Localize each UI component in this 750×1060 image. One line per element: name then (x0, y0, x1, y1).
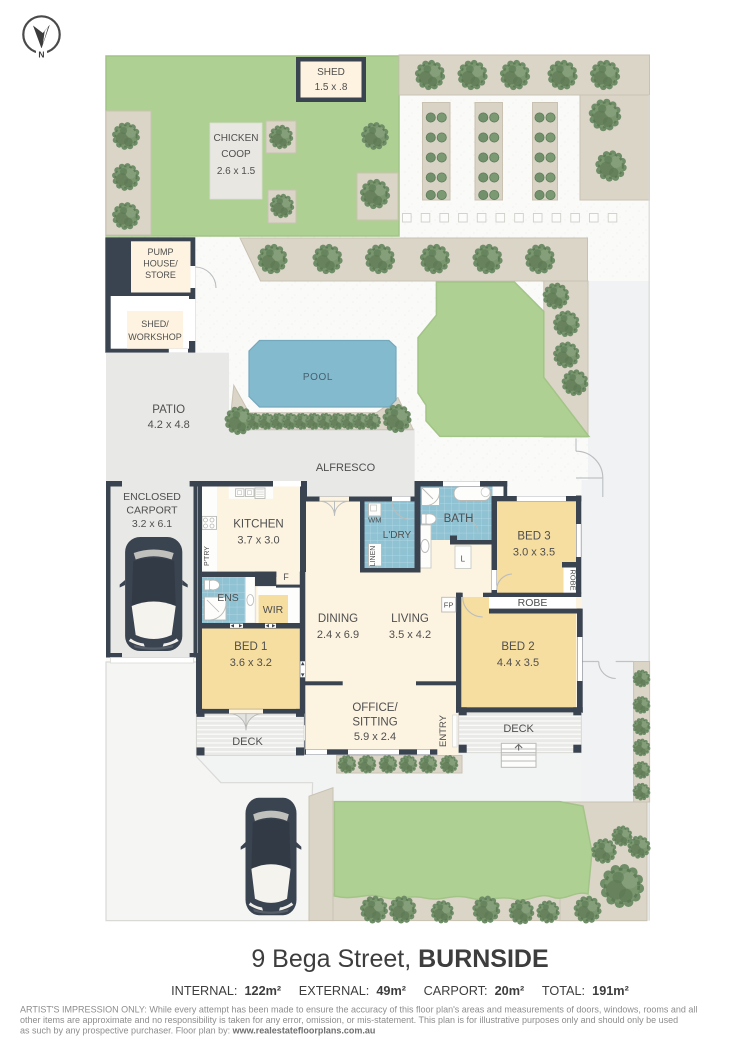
svg-text:ALFRESCO: ALFRESCO (316, 462, 376, 474)
svg-text:SHED/: SHED/ (141, 319, 169, 329)
svg-text:DECK: DECK (503, 723, 534, 735)
svg-text:DECK: DECK (232, 736, 263, 748)
svg-text:3.6 x 3.2: 3.6 x 3.2 (230, 657, 272, 669)
svg-text:PUMP: PUMP (147, 247, 173, 257)
svg-text:LIVING: LIVING (391, 613, 429, 625)
svg-text:2.4 x 6.9: 2.4 x 6.9 (317, 629, 359, 641)
svg-text:PATIO: PATIO (152, 404, 185, 416)
svg-text:1.5 x .8: 1.5 x .8 (315, 82, 348, 93)
svg-text:ROBE: ROBE (518, 597, 548, 609)
svg-text:P'TRY: P'TRY (204, 546, 211, 566)
svg-text:ENCLOSED: ENCLOSED (123, 491, 181, 503)
svg-text:CARPORT: CARPORT (126, 505, 178, 517)
svg-text:OFFICE/: OFFICE/ (352, 702, 398, 714)
svg-text:DINING: DINING (318, 613, 358, 625)
svg-text:POOL: POOL (303, 372, 333, 383)
svg-text:as such by any prospective pur: as such by any prospective purchaser. Fl… (20, 1026, 375, 1036)
svg-text:SHED: SHED (317, 67, 345, 78)
svg-text:other items are approximate an: other items are approximate and no respo… (20, 1015, 678, 1025)
svg-text:INTERNAL: 122m² EXTERNAL:: INTERNAL: 122m² EXTERNAL: 49m² CARPORT: … (171, 984, 629, 998)
svg-text:L: L (461, 555, 466, 564)
svg-text:4.4 x 3.5: 4.4 x 3.5 (497, 657, 539, 669)
svg-text:3.7 x 3.0: 3.7 x 3.0 (237, 535, 279, 547)
svg-text:CHICKEN: CHICKEN (213, 133, 258, 144)
svg-text:ROBE: ROBE (569, 569, 578, 590)
svg-text:ARTIST'S IMPRESSION ONLY: Whil: ARTIST'S IMPRESSION ONLY: While every at… (20, 1005, 697, 1015)
svg-text:LINEN: LINEN (370, 546, 377, 567)
svg-text:SITTING: SITTING (352, 717, 397, 729)
svg-text:5.9 x 2.4: 5.9 x 2.4 (354, 731, 396, 743)
svg-text:HOUSE/: HOUSE/ (143, 259, 178, 269)
svg-text:BATH: BATH (444, 513, 474, 525)
svg-text:COOP: COOP (221, 149, 251, 160)
svg-text:WORKSHOP: WORKSHOP (128, 332, 182, 342)
svg-text:BED 2: BED 2 (501, 641, 534, 653)
svg-text:KITCHEN: KITCHEN (233, 519, 283, 531)
svg-text:3.0 x 3.5: 3.0 x 3.5 (513, 547, 555, 559)
svg-text:ENTRY: ENTRY (438, 714, 449, 747)
svg-text:BED 1: BED 1 (234, 641, 267, 653)
svg-text:4.2 x 4.8: 4.2 x 4.8 (148, 419, 190, 431)
svg-text:FP: FP (444, 601, 454, 610)
svg-text:WIR: WIR (263, 604, 284, 616)
svg-text:9 Bega Street, BURNSIDE: 9 Bega Street, BURNSIDE (251, 945, 548, 973)
svg-text:N: N (38, 50, 44, 60)
svg-text:3.2 x 6.1: 3.2 x 6.1 (132, 518, 172, 530)
svg-text:WM: WM (368, 516, 381, 525)
svg-text:BED 3: BED 3 (517, 531, 550, 543)
svg-text:ENS: ENS (217, 592, 239, 604)
svg-text:L'DRY: L'DRY (383, 530, 412, 541)
svg-text:2.6 x 1.5: 2.6 x 1.5 (217, 166, 256, 177)
svg-text:3.5 x 4.2: 3.5 x 4.2 (389, 629, 431, 641)
svg-text:F: F (283, 572, 289, 582)
svg-text:STORE: STORE (145, 270, 176, 280)
